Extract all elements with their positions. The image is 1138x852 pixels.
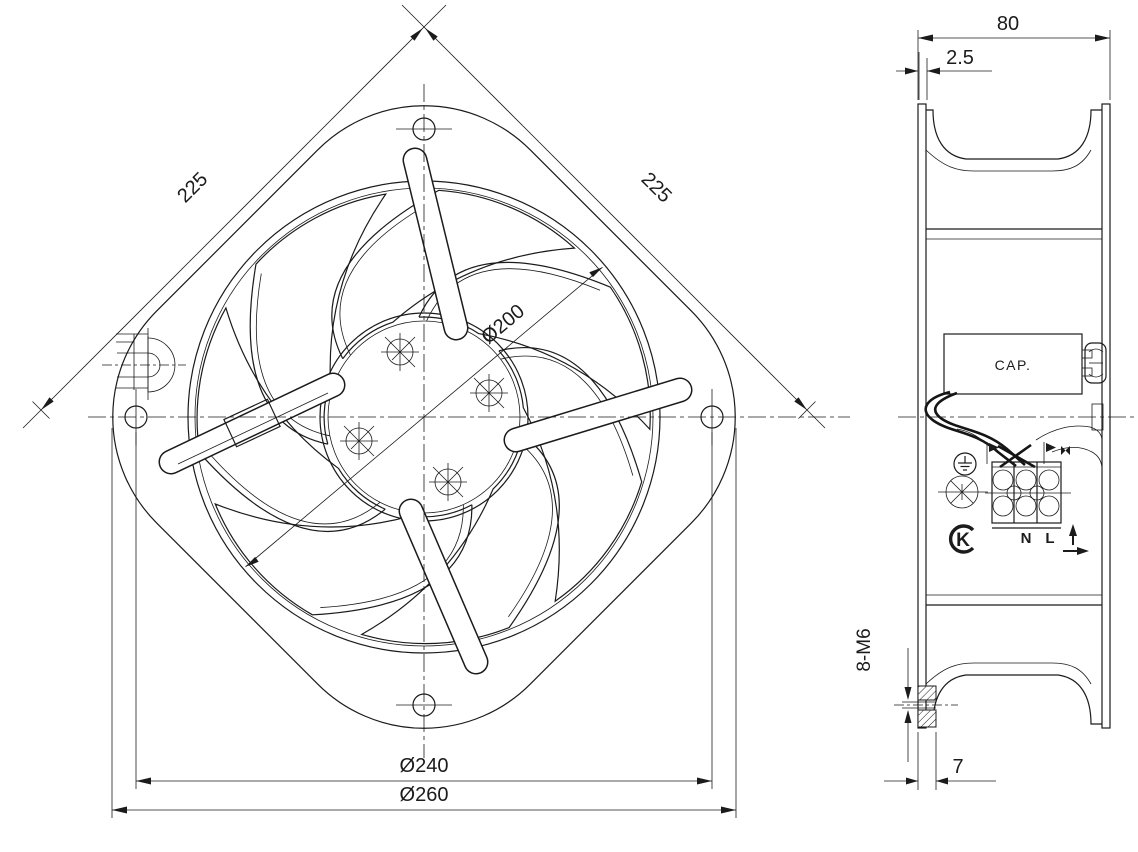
ground-symbol-icon (954, 453, 976, 475)
dim-side-top-right: 225 (402, 5, 825, 428)
hub-screw (340, 422, 378, 460)
dim-flange-thickness-label: 7 (952, 756, 963, 778)
terminal-neutral-label: N (1021, 530, 1032, 547)
dim-depth-label: 80 (997, 13, 1019, 35)
cable-grommet (1085, 343, 1106, 383)
dim-impeller-diameter-label: Ø200 (477, 300, 529, 348)
venturi-profile-top (926, 110, 1102, 171)
dim-side-top-left: 225 (23, 5, 446, 428)
certification-mark-icon: K (951, 526, 973, 552)
hub-screw (381, 333, 419, 371)
dim-mounting-holes-label: 8-M6 (854, 628, 875, 671)
dim-wall-thickness: 2.5 (896, 47, 992, 100)
side-view: CAP. (854, 13, 1136, 790)
terminal-live-label: L (1045, 530, 1054, 547)
technical-drawing-canvas: Ø200 225 225 Ø240 (0, 0, 1138, 852)
dim-side-top-left-label: 225 (173, 168, 212, 207)
venturi-profile-bottom (926, 663, 1102, 724)
twisted-wires (926, 392, 1035, 467)
front-view: Ø200 225 225 Ø240 (23, 5, 850, 818)
dim-side-top-right-label: 225 (637, 168, 676, 207)
hub-screw (470, 374, 508, 412)
bowtie-icon (1061, 446, 1070, 455)
capacitor-box: CAP. (944, 334, 1092, 394)
dim-mounting-holes: 8-M6 (854, 628, 912, 762)
dim-flange-thickness: 7 (884, 732, 996, 790)
housing-side-walls (918, 104, 1110, 728)
dim-flange-diameter-label: Ø260 (400, 784, 449, 806)
cable-conduit (102, 328, 186, 400)
terminal-block: N L (985, 462, 1071, 547)
strut-bottom (411, 511, 476, 662)
capacitor-label: CAP. (995, 357, 1032, 373)
dim-wall-thickness-label: 2.5 (946, 47, 974, 69)
airflow-up-arrow-icon (1069, 524, 1077, 545)
airflow-right-arrow-icon (1063, 547, 1089, 555)
certification-mark-letter: K (956, 530, 970, 551)
fan-drawing-svg: Ø200 225 225 Ø240 (0, 0, 1138, 852)
hub-screw (429, 463, 467, 501)
dim-bolt-circle-label: Ø240 (400, 755, 449, 777)
rotation-symbol-icon (938, 476, 988, 508)
strut-top (415, 160, 456, 328)
